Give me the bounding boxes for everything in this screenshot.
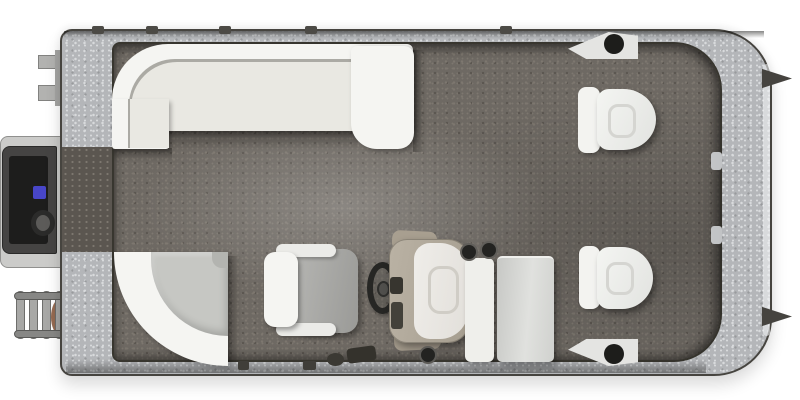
- bow-chair-port-cushion: [608, 104, 636, 138]
- rail-joint: [146, 26, 158, 34]
- motor-steering-hub: [31, 210, 55, 236]
- cup-holder-icon: [480, 241, 498, 259]
- lounge-shadow: [228, 256, 241, 362]
- stern-gate: [62, 147, 113, 252]
- rail-joint: [219, 26, 231, 34]
- jump-seat-back: [465, 258, 494, 362]
- cleat-hole: [604, 344, 624, 364]
- rail-joint: [92, 26, 104, 34]
- fence-joint: [711, 226, 722, 244]
- cup-holder-icon: [460, 243, 478, 261]
- rail-joint: [500, 26, 512, 34]
- helm-grab-handle: [428, 266, 459, 314]
- deck-ring-fitting: [419, 346, 437, 364]
- page-title: Pontoon Boat Floorplan - Overhead View: [0, 21, 1, 22]
- cleat-hole: [604, 34, 624, 54]
- lounge-shadow: [114, 148, 172, 162]
- armrest-shadow: [413, 50, 426, 152]
- rail-joint: [238, 361, 249, 370]
- fence-joint: [711, 152, 722, 170]
- port-stern-lounge-arm-cushion: [128, 99, 169, 148]
- chaise-armrest: [351, 46, 414, 149]
- rail-joint: [303, 361, 316, 370]
- deck-edge-shadow: [64, 31, 764, 38]
- helm-footwell-slot: [391, 302, 403, 329]
- rail-joint: [305, 26, 317, 34]
- captain-chair-backrest: [264, 252, 298, 327]
- cooler-bench: [497, 256, 554, 362]
- captain-chair-seat: [293, 249, 358, 333]
- floorplan-stage: Pontoon Boat Floorplan - Overhead View: [0, 0, 800, 400]
- bow-chair-starboard-cushion: [606, 262, 634, 295]
- motor-badge: [33, 186, 46, 199]
- ski-tow-fitting: [327, 353, 344, 366]
- bow-edge-highlight: [763, 64, 770, 336]
- helm-gauge-slot: [390, 277, 403, 294]
